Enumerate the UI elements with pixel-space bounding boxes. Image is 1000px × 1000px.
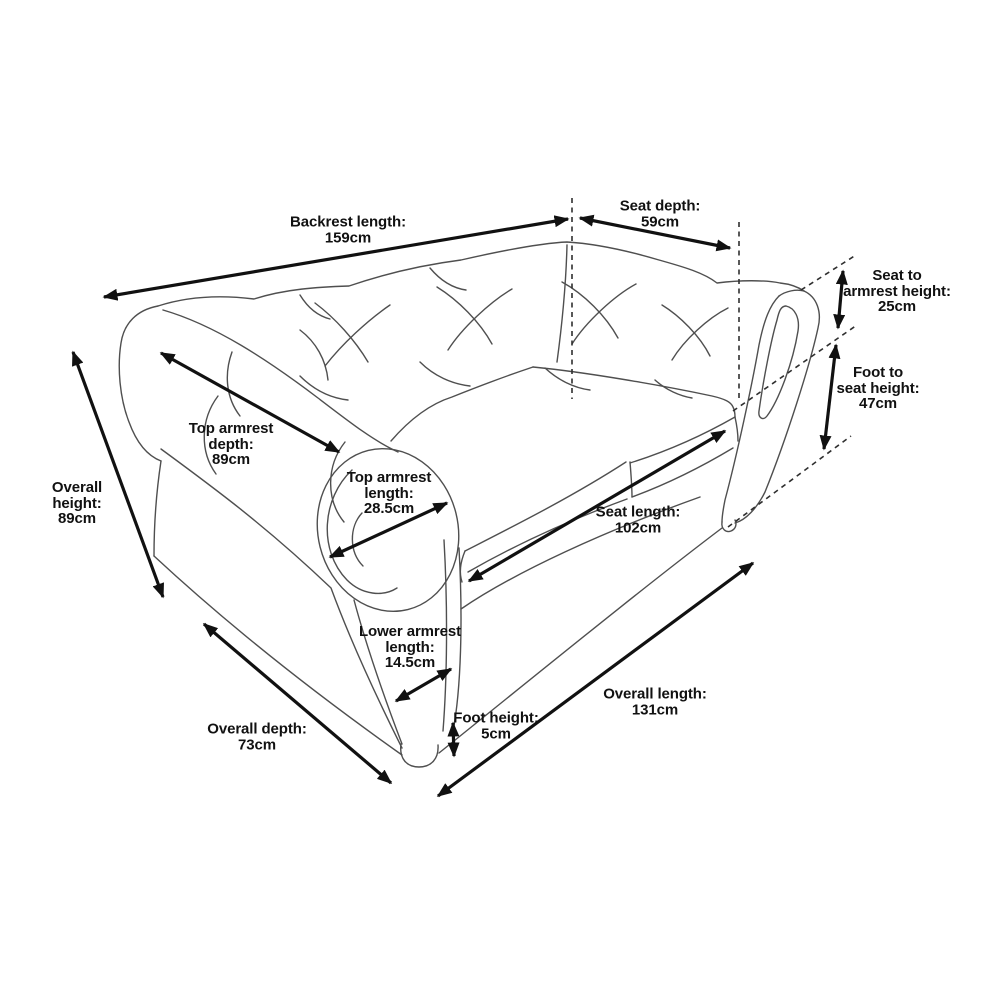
measurement-value: 73cm bbox=[207, 737, 306, 753]
measurement-name-line: Seat length: bbox=[596, 505, 681, 521]
measurement-name-line: Seat depth: bbox=[620, 199, 701, 215]
label-top-armrest-depth: Top armrest depth: 89cm bbox=[189, 421, 273, 468]
measurement-name-line: Overall length: bbox=[603, 687, 707, 703]
measurement-value: 131cm bbox=[603, 702, 707, 718]
label-lower-armrest-length: Lower armrest length: 14.5cm bbox=[359, 624, 461, 671]
measurement-name-line: height: bbox=[52, 495, 102, 511]
sofa-backrest-seam bbox=[557, 245, 567, 362]
measurement-name-line: Top armrest bbox=[189, 421, 273, 437]
sofa-dimensions-diagram: Backrest length: 159cm Seat depth: 59cm … bbox=[0, 0, 1000, 1000]
arrow-overall-length bbox=[438, 563, 753, 796]
measurement-value: 5cm bbox=[453, 726, 538, 742]
label-overall-depth: Overall depth: 73cm bbox=[207, 722, 306, 753]
measurement-name-line: length: bbox=[347, 485, 431, 501]
measurement-name-line: Top armrest bbox=[347, 470, 431, 486]
measurement-name-line: Overall depth: bbox=[207, 722, 306, 738]
label-overall-length: Overall length: 131cm bbox=[603, 687, 707, 718]
label-foot-height: Foot height: 5cm bbox=[453, 711, 538, 742]
sofa-illustration bbox=[119, 242, 819, 767]
label-seat-depth: Seat depth: 59cm bbox=[620, 199, 701, 230]
measurement-value: 14.5cm bbox=[359, 655, 461, 671]
measurement-value: 47cm bbox=[837, 396, 920, 412]
measurement-name-line: Foot height: bbox=[453, 711, 538, 727]
measurement-name-line: Backrest length: bbox=[290, 215, 406, 231]
arrow-lower-armrest-length bbox=[396, 669, 451, 701]
sofa-left-arm bbox=[119, 306, 475, 748]
measurement-name-line: Lower armrest bbox=[359, 624, 461, 640]
measurement-name-line: length: bbox=[359, 639, 461, 655]
measurement-value: 159cm bbox=[290, 230, 406, 246]
measurement-name-line: armrest height: bbox=[843, 283, 951, 299]
guide-foot-level bbox=[728, 436, 851, 527]
dashed-guide-lines bbox=[572, 198, 857, 527]
measurement-name-line: Overall bbox=[52, 480, 102, 496]
label-top-armrest-length: Top armrest length: 28.5cm bbox=[347, 470, 431, 517]
sofa-front-foot bbox=[401, 744, 438, 767]
sofa-right-arm bbox=[722, 290, 819, 531]
arrow-overall-height bbox=[73, 352, 163, 597]
diagram-canvas bbox=[0, 0, 1000, 1000]
label-backrest-length: Backrest length: 159cm bbox=[290, 215, 406, 246]
sofa-backrest-top-edge bbox=[158, 242, 804, 306]
sofa-seat-cushions bbox=[391, 367, 738, 582]
measurement-value: 89cm bbox=[52, 511, 102, 527]
label-seat-length: Seat length: 102cm bbox=[596, 505, 681, 536]
arrow-foot-to-seat-height bbox=[824, 345, 836, 449]
measurement-value: 28.5cm bbox=[347, 501, 431, 517]
sofa-tufting-detail bbox=[204, 268, 728, 522]
measurement-value: 89cm bbox=[189, 452, 273, 468]
measurement-value: 102cm bbox=[596, 520, 681, 536]
measurement-name-line: depth: bbox=[189, 436, 273, 452]
measurement-value: 59cm bbox=[620, 214, 701, 230]
measurement-name-line: Seat to bbox=[843, 268, 951, 284]
label-foot-to-seat-height: Foot to seat height: 47cm bbox=[837, 365, 920, 412]
measurement-name-line: seat height: bbox=[837, 380, 920, 396]
label-seat-to-armrest-height: Seat to armrest height: 25cm bbox=[843, 268, 951, 315]
label-overall-height: Overall height: 89cm bbox=[52, 480, 102, 527]
measurement-value: 25cm bbox=[843, 299, 951, 315]
measurement-name-line: Foot to bbox=[837, 365, 920, 381]
